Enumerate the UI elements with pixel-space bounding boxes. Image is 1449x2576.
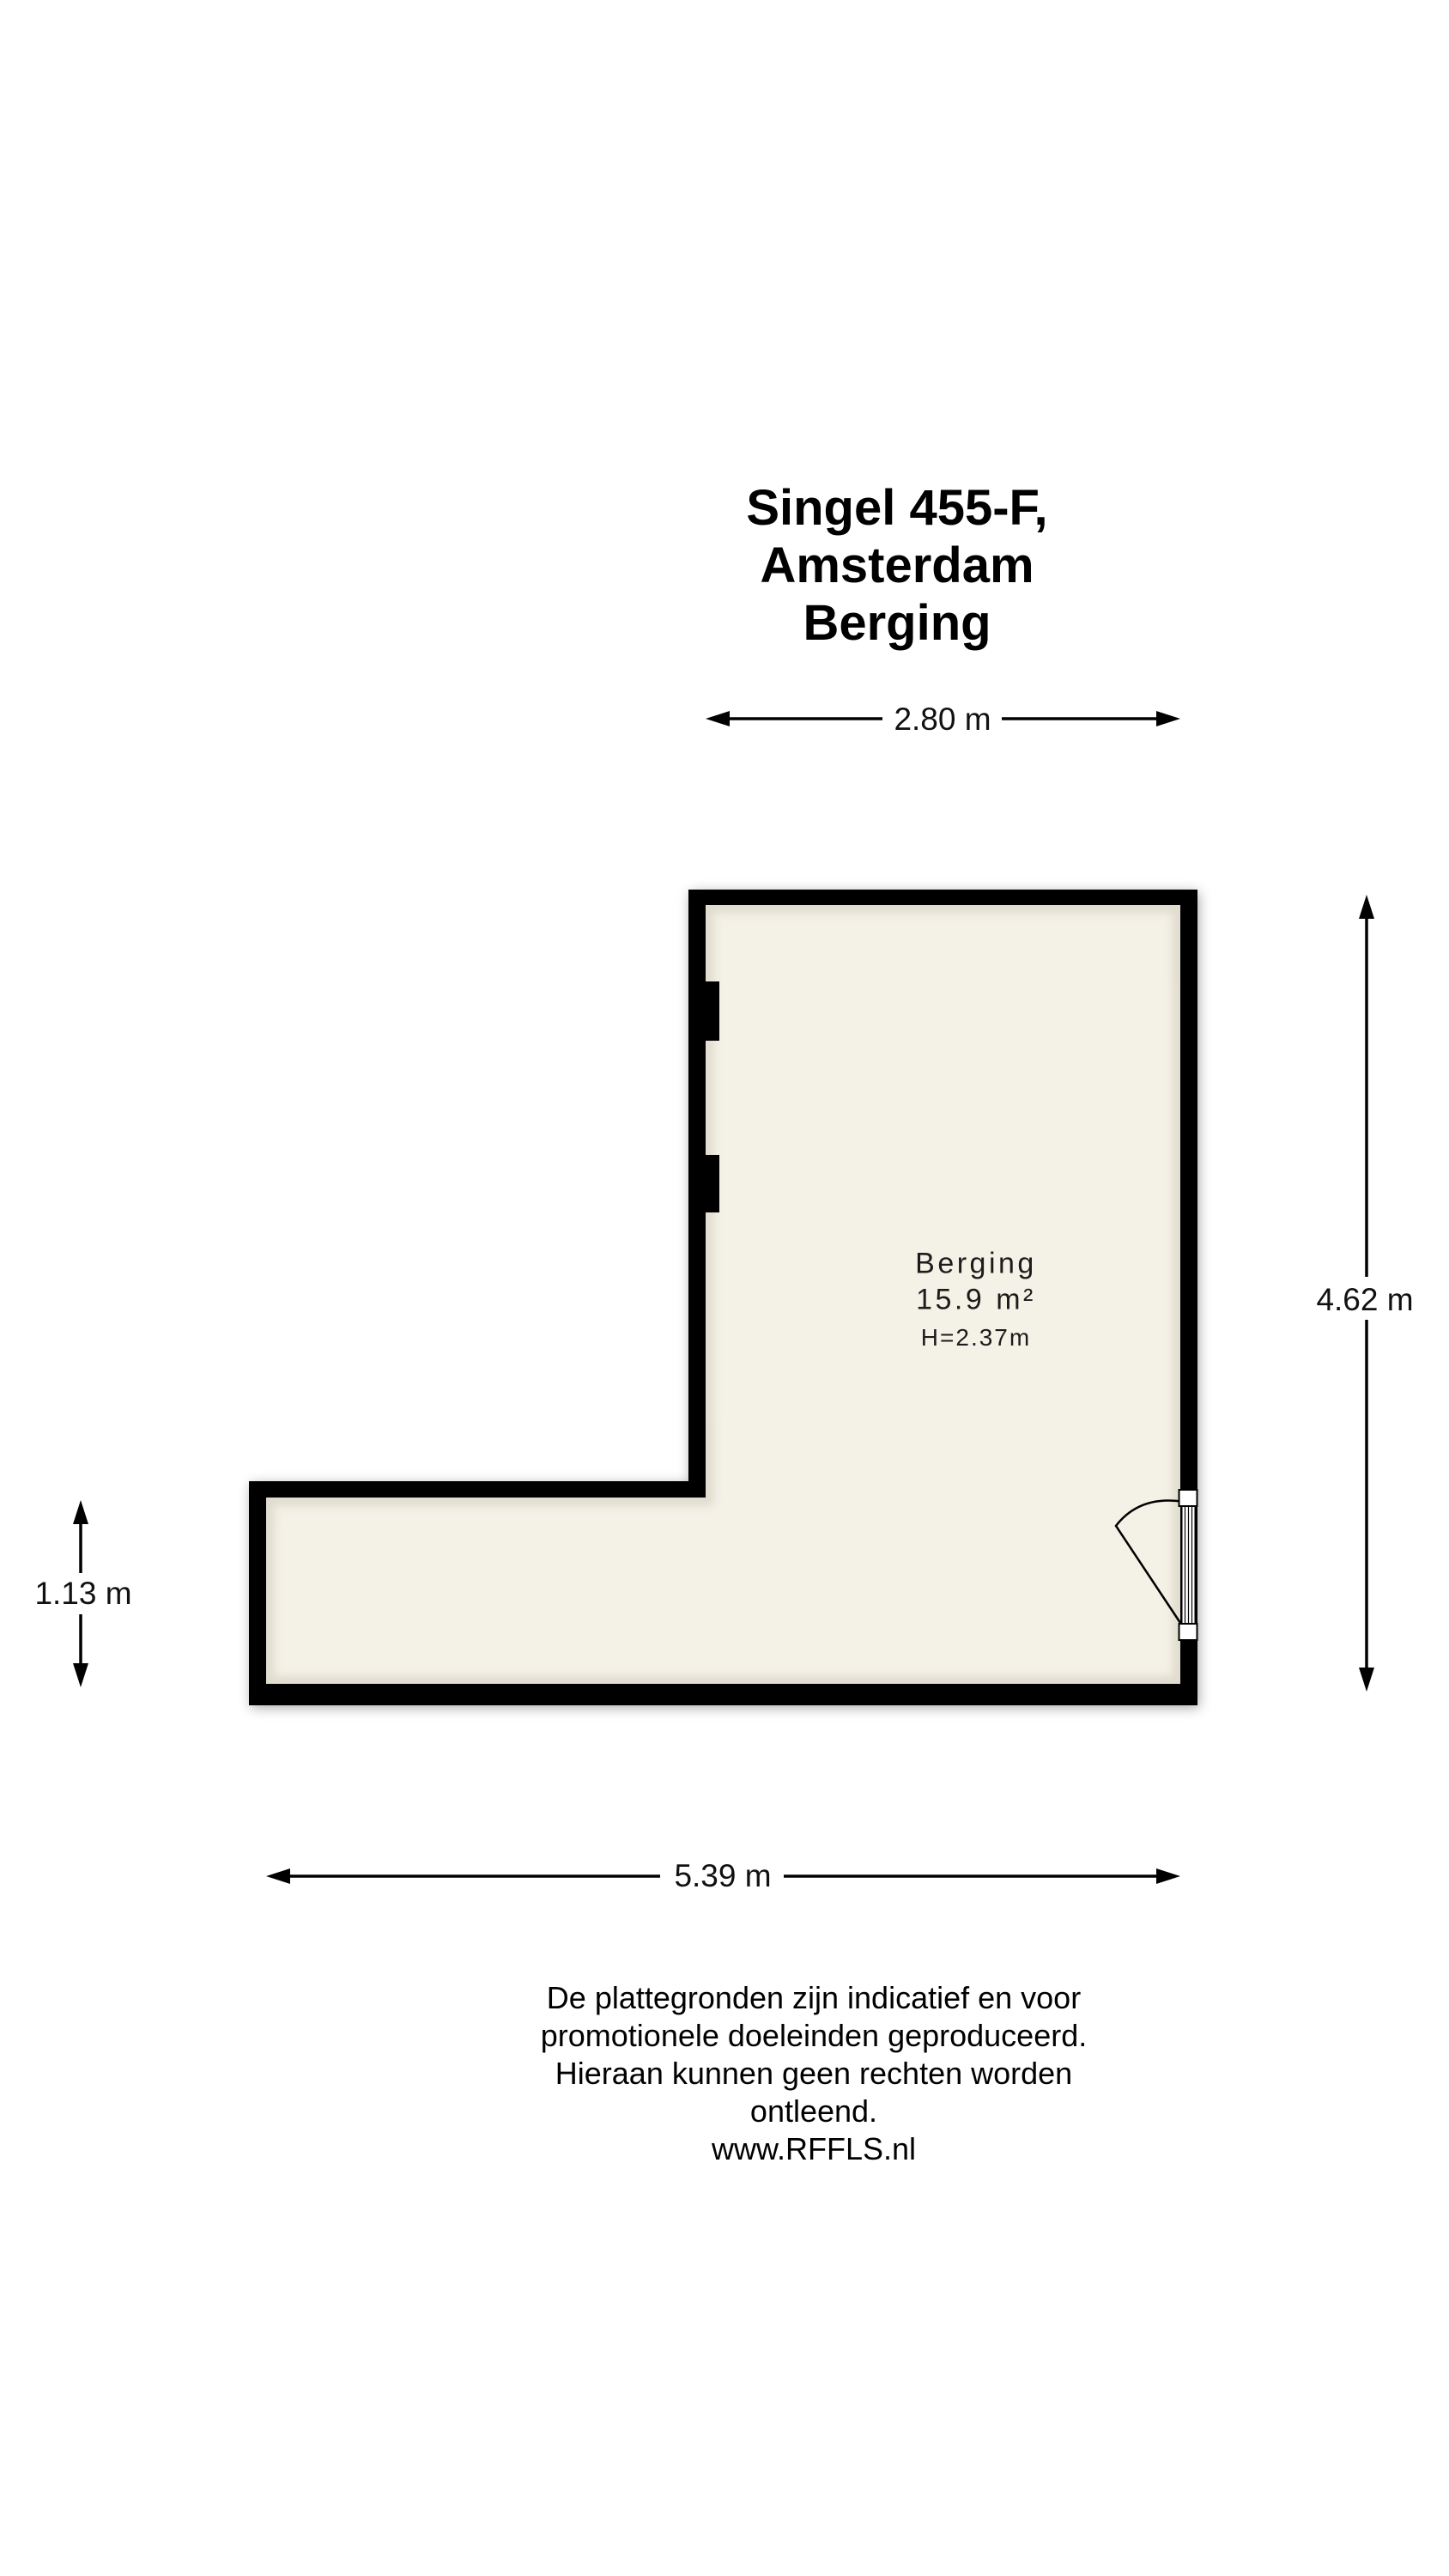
dimension-label-left: 1.13 m xyxy=(29,1576,136,1612)
plan-title-room: Berging xyxy=(621,594,1173,652)
footer-disclaimer: De plattegronden zijn indicatief en voor… xyxy=(496,1979,1131,2168)
footer-website: www.RFFLS.nl xyxy=(496,2130,1131,2168)
wall-notch-lower xyxy=(695,1155,719,1212)
door-hinge-top xyxy=(1179,1490,1197,1506)
arrow-up-icon xyxy=(1359,895,1374,919)
dimension-label-right: 4.62 m xyxy=(1311,1282,1418,1318)
floorplan-page: { "title": { "line1": "Singel 455-F, Ams… xyxy=(0,0,1449,2576)
arrow-left-icon xyxy=(266,1868,290,1884)
dimension-label-bottom: 5.39 m xyxy=(669,1858,776,1894)
arrow-down-icon xyxy=(1359,1668,1374,1692)
dimension-label-top: 2.80 m xyxy=(888,702,996,738)
arrow-left-icon xyxy=(706,711,730,726)
wall-notch-upper xyxy=(695,981,719,1041)
room-area-label: 15.9 m² xyxy=(916,1284,1036,1317)
plan-title: Singel 455-F, Amsterdam Berging xyxy=(621,479,1173,652)
room-ceiling-height-label: H=2.37m xyxy=(921,1324,1031,1352)
arrow-up-icon xyxy=(73,1500,88,1524)
footer-line-1: De plattegronden zijn indicatief en voor… xyxy=(496,1979,1131,2055)
plan-title-address: Singel 455-F, Amsterdam xyxy=(621,479,1173,594)
footer-line-2: Hieraan kunnen geen rechten worden ontle… xyxy=(496,2055,1131,2130)
door-hinge-bottom xyxy=(1179,1624,1197,1640)
arrow-down-icon xyxy=(73,1663,88,1687)
floorplan-drawing xyxy=(0,0,1449,2576)
floor-area xyxy=(266,905,1180,1684)
arrow-right-icon xyxy=(1156,711,1180,726)
arrow-right-icon xyxy=(1156,1868,1180,1884)
room-name-label: Berging xyxy=(915,1248,1037,1281)
